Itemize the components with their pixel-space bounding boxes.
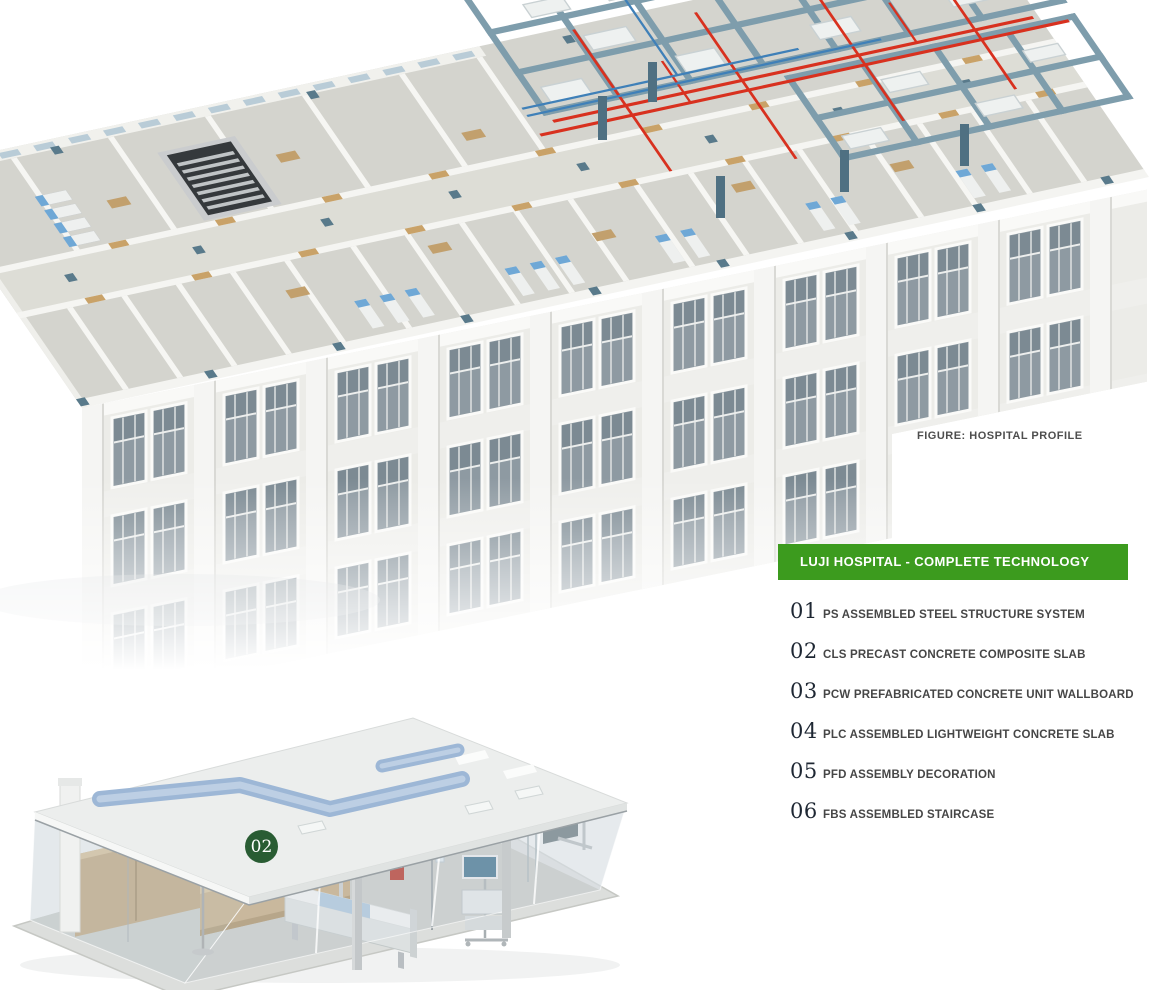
tech-item-02: 02 CLS PRECAST CONCRETE COMPOSITE SLAB (790, 639, 1152, 665)
tech-item-number: 04 (790, 719, 823, 743)
tech-item-number: 05 (790, 759, 823, 783)
panel-header: LUJI HOSPITAL - COMPLETE TECHNOLOGY (778, 544, 1128, 580)
tech-item-03: 03 PCW PREFABRICATED CONCRETE UNIT WALLB… (790, 679, 1152, 705)
tech-item-05: 05 PFD ASSEMBLY DECORATION (790, 759, 1152, 785)
tech-item-number: 06 (790, 799, 823, 823)
tech-item-label: CLS PRECAST CONCRETE COMPOSITE SLAB (823, 649, 1086, 661)
tech-item-01: 01 PS ASSEMBLED STEEL STRUCTURE SYSTEM (790, 599, 1152, 625)
tech-item-label: FBS ASSEMBLED STAIRCASE (823, 809, 994, 821)
tech-item-label: PFD ASSEMBLY DECORATION (823, 769, 996, 781)
figure-canvas: FIGURE: HOSPITAL PROFILE 02 LUJI HOSPITA… (0, 0, 1152, 990)
tech-item-number: 02 (790, 639, 823, 663)
tech-item-number: 01 (790, 599, 823, 623)
panel-items: 01 PS ASSEMBLED STEEL STRUCTURE SYSTEM 0… (790, 599, 1152, 839)
slab-badge: 02 (245, 830, 278, 863)
tech-item-04: 04 PLC ASSEMBLED LIGHTWEIGHT CONCRETE SL… (790, 719, 1152, 745)
tech-item-number: 03 (790, 679, 823, 703)
patient-room-render (0, 690, 660, 990)
figure-caption: FIGURE: HOSPITAL PROFILE (917, 430, 1083, 442)
tech-item-label: PLC ASSEMBLED LIGHTWEIGHT CONCRETE SLAB (823, 729, 1115, 741)
tech-item-label: PS ASSEMBLED STEEL STRUCTURE SYSTEM (823, 609, 1085, 621)
slab-badge-label: 02 (251, 837, 273, 857)
tech-item-06: 06 FBS ASSEMBLED STAIRCASE (790, 799, 1152, 825)
tech-item-label: PCW PREFABRICATED CONCRETE UNIT WALLBOAR… (823, 689, 1134, 701)
